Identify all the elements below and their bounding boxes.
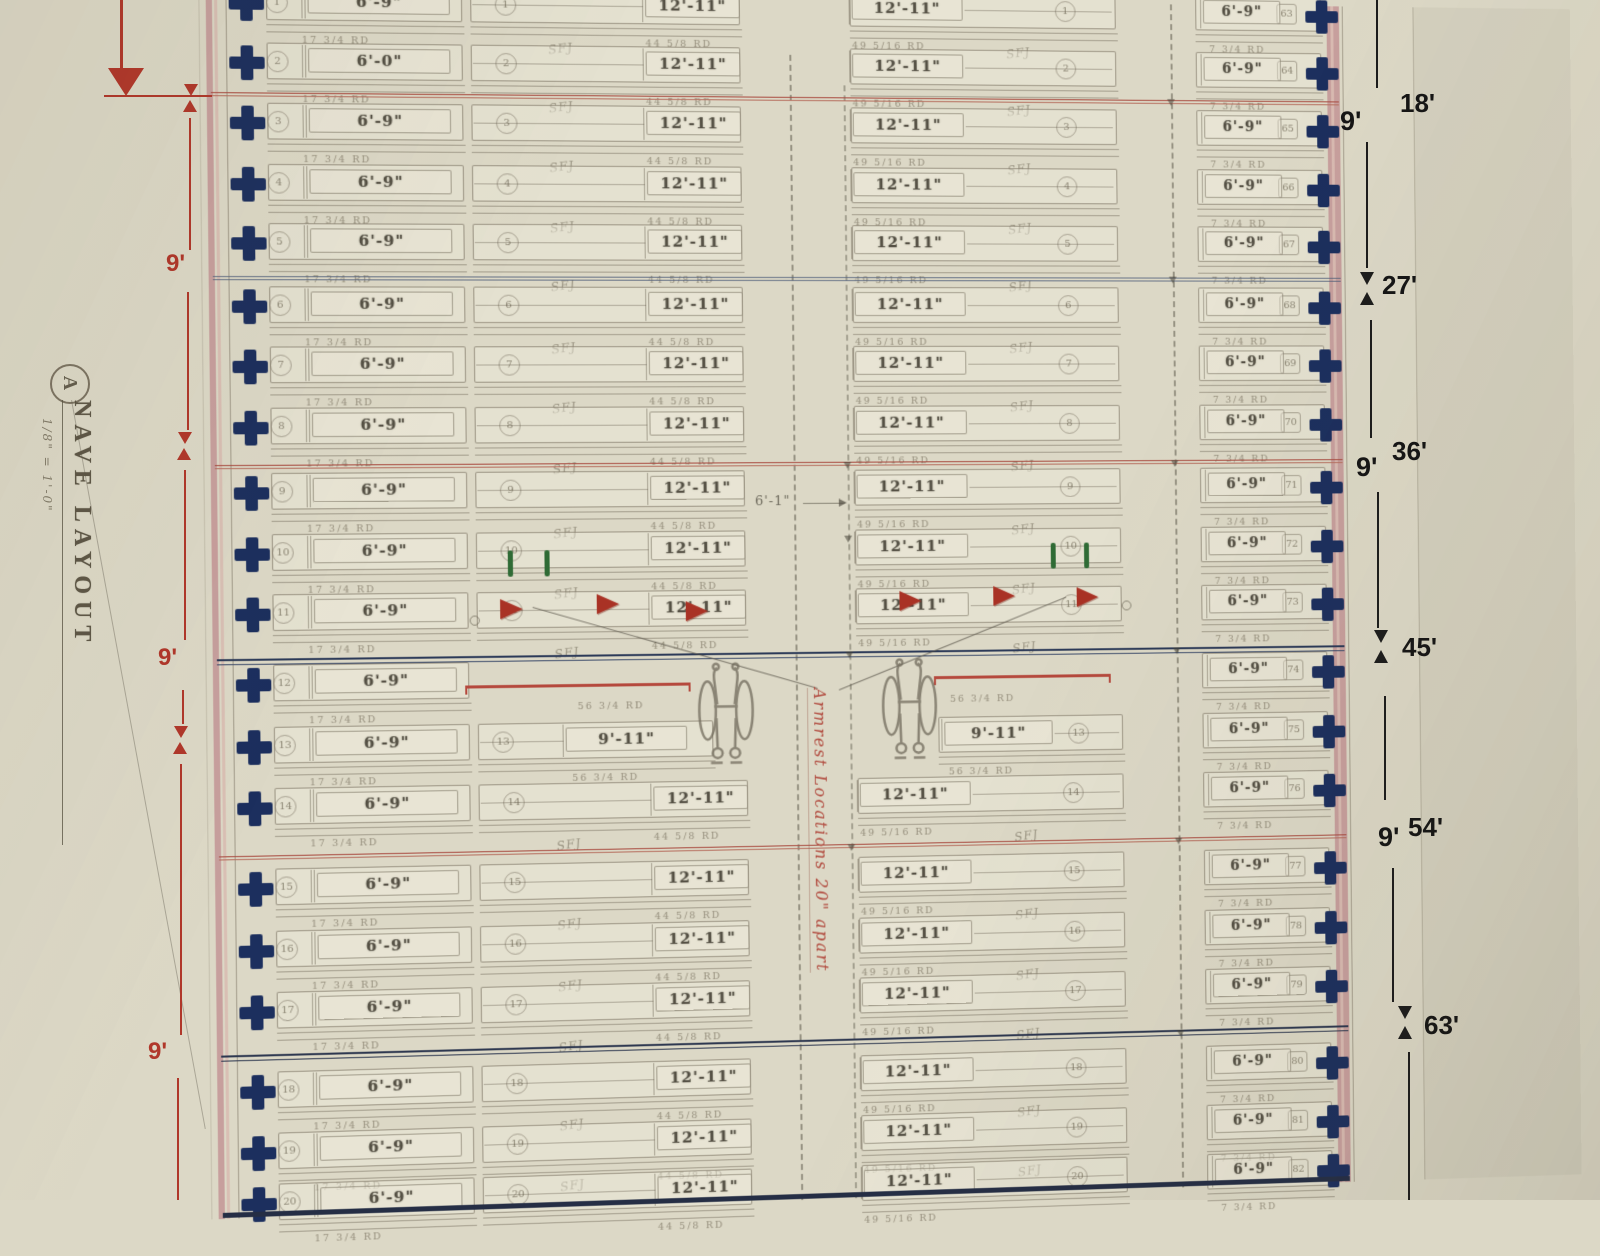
pew: 696'-9"7 3/4 RD [1199, 345, 1325, 402]
pew-number: 8 [271, 416, 293, 437]
pew-bench-line [859, 898, 1127, 905]
pew-bench-line [858, 813, 1126, 819]
dimension-line [1366, 142, 1368, 268]
pew-bench-line [1206, 1005, 1333, 1009]
aisle-dimension-arrow-icon [839, 499, 847, 507]
pew-count-note: 7 3/4 RD [1216, 701, 1272, 713]
pew: 312'-11"44 5/8 RD [471, 104, 741, 164]
dimension-line [189, 118, 191, 250]
pew: 136'-9"17 3/4 RD [274, 724, 470, 786]
pew-cross-icon [236, 730, 272, 765]
pew-length-label: 9'-11" [944, 720, 1052, 746]
pew-bench-line [472, 213, 743, 215]
dimension-line [1377, 492, 1379, 628]
pew-bench-line [861, 1094, 1129, 1103]
pew: 1712'-11"49 5/16 RD [860, 971, 1126, 1035]
dashed-line-tick-icon [845, 651, 853, 658]
pew: 666'-9"7 3/4 RD [1197, 169, 1323, 227]
dimension-label: 27' [1382, 270, 1417, 301]
pew-bench-line [1205, 946, 1332, 950]
pew: 686'-9"7 3/4 RD [1198, 287, 1324, 344]
pew-cross-icon [1306, 57, 1339, 91]
pew-bench-line [274, 771, 472, 775]
red-location-marker-icon [500, 599, 523, 619]
pew-number: 8 [499, 415, 521, 436]
pew-bench-line [850, 88, 1118, 91]
pew-bench-line [270, 334, 468, 335]
pew-bench-line [1199, 385, 1326, 386]
drawing-title: NAVE LAYOUT [62, 400, 95, 845]
pew-length-label: 12'-11" [650, 475, 745, 500]
dashed-line-tick-icon [1169, 277, 1177, 284]
pew-cross-icon [239, 995, 275, 1031]
pew-length-label: 6'-9" [313, 538, 455, 564]
pew-bench-line [270, 327, 468, 328]
pew-bench-line [1199, 327, 1326, 328]
dimension-line [177, 1078, 179, 1200]
pew: 1012'-11"44 5/8 RD [476, 530, 746, 591]
pew-length-label: 6'-9" [1211, 776, 1288, 801]
pew-number: 3 [496, 113, 518, 134]
pew-bench-line [939, 761, 1125, 765]
dimension-arrow-icon [1374, 630, 1388, 643]
blueprint-photo: { "sheet": { "title_block": { "detail_le… [0, 0, 1600, 1200]
pew: 1812'-11"44 5/8 RD [481, 1058, 751, 1124]
dashed-line-tick-icon [1177, 1030, 1185, 1037]
pew-length-label: 12'-11" [654, 864, 749, 890]
pew-cross-icon [240, 1075, 276, 1111]
dimension-arrow-icon [1374, 650, 1388, 663]
dimension-arrow-icon [1398, 1026, 1412, 1039]
aisle-center-dashed-line [789, 55, 803, 1200]
pew-cross-icon [1311, 587, 1344, 621]
pew-bench-line [1197, 216, 1324, 217]
pew-cross-icon [1307, 174, 1340, 207]
pew-bench-line [1204, 887, 1331, 891]
pew-cross-icon [1308, 231, 1341, 264]
pew-bench-line [471, 85, 743, 88]
dashed-line-tick-icon [847, 844, 855, 851]
red-location-marker-icon [899, 591, 921, 611]
red-location-marker-icon [1077, 587, 1099, 607]
pew-cross-icon [229, 45, 265, 80]
pew-bench-line [1200, 506, 1327, 508]
pew-cross-icon [1315, 969, 1348, 1003]
pew-number: 7 [498, 354, 520, 375]
pew-length-label: 6'-9" [320, 1132, 462, 1161]
pew-count-note: 7 3/4 RD [1217, 820, 1273, 832]
pew-length-label: 6'-9" [1206, 292, 1283, 316]
pew-bench-line [272, 519, 470, 521]
pew-bench-line [268, 144, 466, 146]
pew: 1512'-11"49 5/16 RD [858, 851, 1124, 914]
pew-cross-icon [234, 537, 270, 572]
detail-letter: A [53, 376, 87, 390]
pew-bench-line [274, 710, 472, 714]
dimension-arrow-icon [177, 448, 191, 460]
pew: 412'-11"44 5/8 RD [472, 165, 742, 225]
pew: 706'-9"7 3/4 RD [1199, 404, 1325, 462]
pew-bench-line [1198, 266, 1325, 267]
pew-bench-line [479, 820, 750, 826]
pew-bench-line [472, 145, 743, 148]
pew: 676'-9"7 3/4 RD [1197, 226, 1323, 283]
dimension-arrow-icon [183, 100, 197, 112]
pew: 766'-9"7 3/4 RD [1203, 770, 1329, 829]
dimension-arrow-icon [178, 432, 192, 444]
pew-bench-line [470, 26, 742, 30]
pew-bench-line [266, 31, 464, 34]
pew-bench-line [1197, 150, 1324, 152]
pew: 612'-11"49 5/16 RD [853, 287, 1119, 345]
pew-cross-icon [1315, 911, 1348, 945]
pew-bench-line [1207, 1189, 1334, 1194]
pew-length-label: 6'-9" [315, 729, 457, 756]
pew-count-note: 49 5/16 RD [864, 1212, 938, 1225]
pew: 1612'-11"44 5/8 RD [480, 920, 750, 985]
pew-length-label: 6'-9" [311, 291, 453, 315]
dimension-label: 45' [1402, 632, 1437, 663]
pew-bench-line [474, 327, 745, 328]
pew-count-note: 7 3/4 RD [1221, 1201, 1277, 1214]
pew-length-label: 12'-11" [649, 411, 744, 435]
pew-bench-line [856, 632, 1124, 636]
pew-bench-line [1196, 91, 1323, 93]
pew-length-label: 6'-9" [310, 228, 452, 253]
pew-divider [848, 0, 849, 25]
pew: 1012'-11"49 5/16 RD [855, 527, 1121, 587]
pew-number: 2 [267, 51, 289, 73]
pew-bench-line [852, 265, 1120, 267]
pew-cross-icon [241, 1136, 277, 1172]
pew-bench-line [271, 448, 469, 450]
pew: 756'-9"7 3/4 RD [1203, 711, 1329, 770]
dimension-line [1384, 696, 1386, 800]
pew: 712'-11"49 5/16 RD [853, 346, 1119, 404]
pew-bench-line [855, 508, 1123, 511]
pew-bench-line [268, 212, 466, 214]
pew-length-label: 6'-9" [1212, 913, 1289, 938]
pew-bench-line [855, 567, 1123, 571]
pew-length-label: 12'-11" [855, 351, 966, 375]
pew-length-label: 6'-9" [1214, 1048, 1291, 1074]
pew-cross-icon [231, 226, 267, 261]
green-armrest-tick-icon [1084, 543, 1089, 569]
pew-cross-icon [1317, 1154, 1350, 1188]
pew-bench-line [1201, 572, 1328, 574]
pew: 156'-9"17 3/4 RD [275, 865, 471, 928]
pew-number: 10 [272, 542, 294, 564]
sheet-right-shade [1413, 7, 1581, 1179]
pew-length-label: 6'-9" [312, 412, 454, 437]
green-armrest-tick-icon [1051, 543, 1056, 569]
dimension-line [187, 292, 189, 430]
pew: 636'-9"7 3/4 RD [1195, 0, 1321, 53]
pew-length-label: 6'-9" [1205, 174, 1282, 198]
pew-length-label: 6'-9" [1213, 972, 1290, 998]
pew: 176'-9"17 3/4 RD [277, 987, 473, 1051]
pew-bench-line [267, 83, 465, 86]
pew-length-label: 12'-11" [653, 785, 748, 811]
pew-length-label: 6'-9" [1207, 350, 1284, 374]
pew-bench-line [1203, 750, 1330, 753]
pew: 912'-11"49 5/16 RD [854, 468, 1120, 527]
pew-bench-line [1202, 630, 1329, 632]
pew: 112'-11"49 5/16 RD [849, 0, 1116, 51]
dimension-label: 9' [148, 1038, 167, 1066]
pew-bench-line [270, 387, 468, 389]
pew-length-label: 12'-11" [655, 985, 750, 1011]
pew-cross-icon [1309, 408, 1342, 441]
pew-bench-line [1207, 1140, 1334, 1145]
pew: 812'-11"49 5/16 RD [854, 405, 1120, 464]
pew-divider [642, 0, 643, 22]
pew-bench-line [474, 386, 745, 388]
pew-length-label: 12'-11" [645, 0, 740, 18]
pew-length-label: 12'-11" [857, 534, 968, 559]
pew-bench-line [851, 147, 1119, 150]
dimension-label: 9' [1378, 822, 1399, 853]
pew-bench-line [1196, 41, 1323, 43]
pew: 112'-11"44 5/8 RD [470, 0, 740, 47]
pew-bench-line [852, 214, 1120, 216]
pew-bench-line [474, 393, 745, 395]
pew-length-label: 12'-11" [856, 410, 967, 434]
pew: 712'-11"44 5/8 RD [474, 346, 744, 405]
pew-length-label: 6'-9" [1208, 472, 1285, 496]
pew-bench-line [274, 703, 472, 707]
pew-length-label: 6'-9" [1203, 0, 1281, 24]
pew-bench-line [278, 1106, 476, 1113]
pew-bench-line [854, 444, 1122, 446]
pew-length-label: 6'-9" [309, 169, 451, 194]
pew-length-label: 6'-9" [318, 932, 460, 960]
pew-bench-line [478, 760, 715, 765]
dimension-line [1370, 320, 1372, 438]
pew-number: 5 [269, 231, 291, 252]
pew-number: 11 [272, 602, 294, 624]
pew: 412'-11"49 5/16 RD [851, 167, 1117, 226]
pew: 146'-9"17 3/4 RD [274, 785, 470, 847]
armrest-bracket-tick [1109, 674, 1111, 683]
pew-bench-line [860, 1017, 1128, 1025]
pew: 812'-11"44 5/8 RD [475, 406, 745, 466]
pew: 512'-11"44 5/8 RD [473, 224, 743, 283]
pew-length-label: 12'-11" [855, 292, 966, 316]
green-armrest-tick-icon [508, 550, 513, 576]
dimension-line [180, 764, 182, 1035]
dimension-line [1408, 1052, 1410, 1200]
pew-length-label: 6'-9" [1203, 57, 1281, 81]
pew-length-label: 6'-9" [313, 477, 455, 502]
dimension-arrow-icon [173, 742, 187, 754]
pew-length-label: 6'-9" [1208, 531, 1285, 555]
pew-length-label: 12'-11" [863, 1057, 974, 1084]
pew-bench-line [272, 580, 470, 583]
pew-bench-line [473, 264, 744, 266]
pew-length-label: 6'-0" [308, 48, 450, 74]
pew-length-label: 6'-9" [314, 598, 456, 624]
dimension-line [184, 470, 186, 640]
pew: 16'-9"17 3/4 RD [266, 0, 463, 45]
pew-bench-line [1199, 334, 1326, 335]
dimension-line [182, 690, 184, 724]
pew-bench-line [1203, 757, 1330, 760]
pew-length-label: 12'-11" [852, 53, 963, 78]
armrest-bracket-note: 56 3/4 RD [950, 693, 1015, 705]
pew-bench-line [269, 264, 467, 265]
pew: 746'-9"7 3/4 RD [1202, 651, 1328, 710]
pew-length-label: 12'-11" [853, 172, 964, 196]
pew-cross-icon [232, 350, 268, 385]
dashed-line-tick-icon [1167, 99, 1175, 106]
armrest-bracket-tick [465, 686, 467, 695]
pew-bench-line [474, 334, 745, 335]
pew-bench-line [853, 327, 1121, 328]
pew: 186'-9"17 3/4 RD [277, 1066, 473, 1131]
pew-divider [301, 0, 302, 18]
dimension-label: 36' [1392, 436, 1427, 467]
pew-bench-line [472, 206, 743, 208]
reference-circle-mark [1122, 600, 1132, 610]
pew: 86'-9"17 3/4 RD [270, 407, 467, 467]
pew-cross-icon [1312, 655, 1345, 689]
pew-count-note: 17 3/4 RD [310, 837, 378, 850]
blueprint-sheet: 16'-9"17 3/4 RD112'-11"44 5/8 RD112'-11"… [0, 0, 1582, 1227]
pew-length-label: 6'-9" [1204, 115, 1282, 139]
pew-bench-line [269, 271, 467, 272]
pew: 786'-9"7 3/4 RD [1205, 907, 1331, 967]
pew: 612'-11"44 5/8 RD [473, 287, 743, 346]
pew-bench-line [1206, 1082, 1333, 1087]
pew-length-label: 12'-11" [861, 920, 972, 946]
pew-bench-line [1202, 697, 1329, 700]
armrest-bracket-line [465, 682, 690, 688]
pew-bench-line [472, 152, 743, 155]
pew-bench-line [1199, 392, 1326, 393]
pew: 1612'-11"49 5/16 RD [859, 912, 1125, 976]
pew-bench-line [939, 754, 1125, 758]
wheelchair-icon [880, 654, 939, 772]
pew-length-label: 6'-9" [319, 1071, 461, 1099]
pew: 139'-11"56 3/4 RD [478, 720, 714, 782]
pew-length-label: 12'-11" [856, 474, 967, 499]
pew-cross-icon [235, 597, 271, 632]
pew-back-line [968, 305, 1115, 306]
pew: 1712'-11"44 5/8 RD [481, 980, 751, 1045]
pew-bench-line [855, 515, 1123, 518]
dashed-line-tick-icon [843, 462, 851, 469]
pew-bench-line [852, 207, 1120, 209]
pew-bench-line [1205, 953, 1332, 957]
pew-length-label: 6'-9" [1210, 717, 1287, 742]
pew-bench-line [276, 967, 474, 973]
pew-length-label: 6'-9" [309, 108, 451, 133]
pew-cross-icon [1309, 349, 1342, 382]
pew-bench-line [476, 510, 747, 513]
pew-cross-icon [230, 167, 266, 202]
dashed-line-tick-icon [1175, 837, 1183, 844]
pew: 312'-11"49 5/16 RD [851, 107, 1118, 166]
pew-length-label: 6'-9" [316, 790, 458, 817]
pew-cross-icon [1317, 1105, 1350, 1139]
datum-line [120, 0, 123, 72]
pew-bench-line [473, 271, 744, 272]
pew-bench-line [274, 764, 472, 768]
dimension-label: 9' [1356, 452, 1377, 483]
pew-bench-line [854, 392, 1122, 394]
pew: 56'-9"17 3/4 RD [268, 223, 465, 282]
pew-cross-icon [238, 872, 274, 907]
pew-count-note: 7 3/4 RD [1215, 633, 1271, 644]
dashed-line-tick-icon [1171, 460, 1179, 467]
pew-bench-line [1200, 450, 1327, 452]
dimension-label: 54' [1408, 812, 1443, 843]
pew-bench-line [860, 958, 1128, 965]
pew-bench-line [1198, 273, 1325, 274]
pew: 36'-9"17 3/4 RD [267, 103, 464, 163]
pew-length-label: 12'-11" [863, 1117, 974, 1144]
pew: 116'-9"17 3/4 RD [272, 592, 469, 653]
pew-length-label: 12'-11" [860, 781, 971, 807]
pew-bench-line [268, 205, 466, 207]
pew-length-label: 6'-9" [1210, 657, 1287, 682]
dimension-label: 9' [1340, 106, 1361, 137]
pew-bench-line [1196, 34, 1323, 36]
dimension-arrow-icon [1360, 292, 1374, 305]
pew: 656'-9"7 3/4 RD [1196, 110, 1322, 168]
pew-bench-line [475, 453, 746, 455]
armrest-bracket-tick [689, 682, 691, 691]
pew: 796'-9"7 3/4 RD [1205, 966, 1331, 1026]
pew: 66'-9"17 3/4 RD [269, 286, 466, 345]
pew-bench-line [1202, 623, 1329, 625]
pew-bench-line [850, 31, 1118, 35]
pew-length-label: 12'-11" [656, 1063, 751, 1090]
armrest-bracket-line [934, 674, 1111, 679]
red-location-marker-icon [686, 601, 708, 621]
pew-cross-icon [1316, 1046, 1349, 1080]
dimension-arrow-icon [1398, 1006, 1412, 1019]
pew-length-label: 12'-11" [862, 980, 973, 1007]
dimension-label: 18' [1400, 88, 1435, 119]
pew-length-label: 6'-9" [307, 0, 449, 15]
pew: 716'-9"7 3/4 RD [1200, 467, 1326, 525]
pew-cross-icon [1311, 530, 1344, 564]
pew-length-label: 9'-11" [566, 726, 688, 752]
pew-number: 9 [500, 480, 522, 501]
dimension-arrow-icon [184, 84, 198, 96]
pew-cross-icon [232, 289, 268, 324]
pew-bench-line [1202, 691, 1329, 694]
pew: 1512'-11"44 5/8 RD [479, 859, 749, 923]
pew-count-note: 49 5/16 RD [858, 637, 932, 649]
pew-bench-line [1204, 893, 1331, 897]
pew-length-label: 6'-9" [317, 870, 459, 897]
pew-bench-line [858, 820, 1126, 826]
pew-number: 5 [497, 232, 519, 253]
reference-circle-mark [470, 616, 480, 626]
pew: 139'-11"56 3/4 RD [938, 714, 1123, 774]
pew-bench-line [271, 455, 469, 457]
pew: 166'-9"17 3/4 RD [276, 926, 472, 990]
pew-length-label: 12'-11" [646, 111, 741, 136]
pew-cross-icon [230, 105, 266, 140]
pew-number: 2 [495, 53, 517, 74]
pew-length-label: 12'-11" [853, 112, 964, 137]
pew-length-label: 6'-9" [1212, 853, 1289, 878]
pew-number: 4 [497, 173, 519, 194]
